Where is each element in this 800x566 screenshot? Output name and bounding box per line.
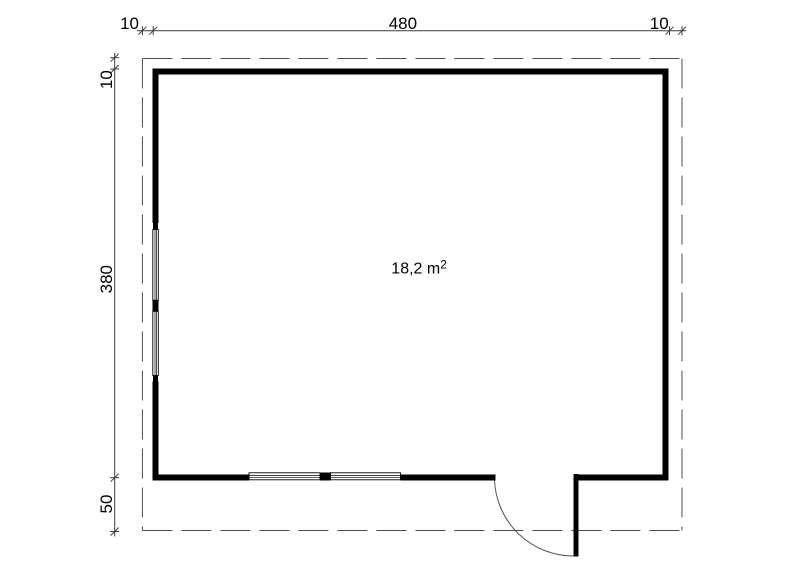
svg-text:50: 50 bbox=[97, 495, 116, 514]
svg-text:380: 380 bbox=[97, 265, 116, 293]
svg-text:10: 10 bbox=[97, 70, 116, 89]
svg-text:10: 10 bbox=[650, 14, 669, 33]
svg-text:18,2 m2: 18,2 m2 bbox=[391, 258, 447, 278]
svg-text:480: 480 bbox=[389, 14, 417, 33]
svg-text:10: 10 bbox=[120, 14, 139, 33]
